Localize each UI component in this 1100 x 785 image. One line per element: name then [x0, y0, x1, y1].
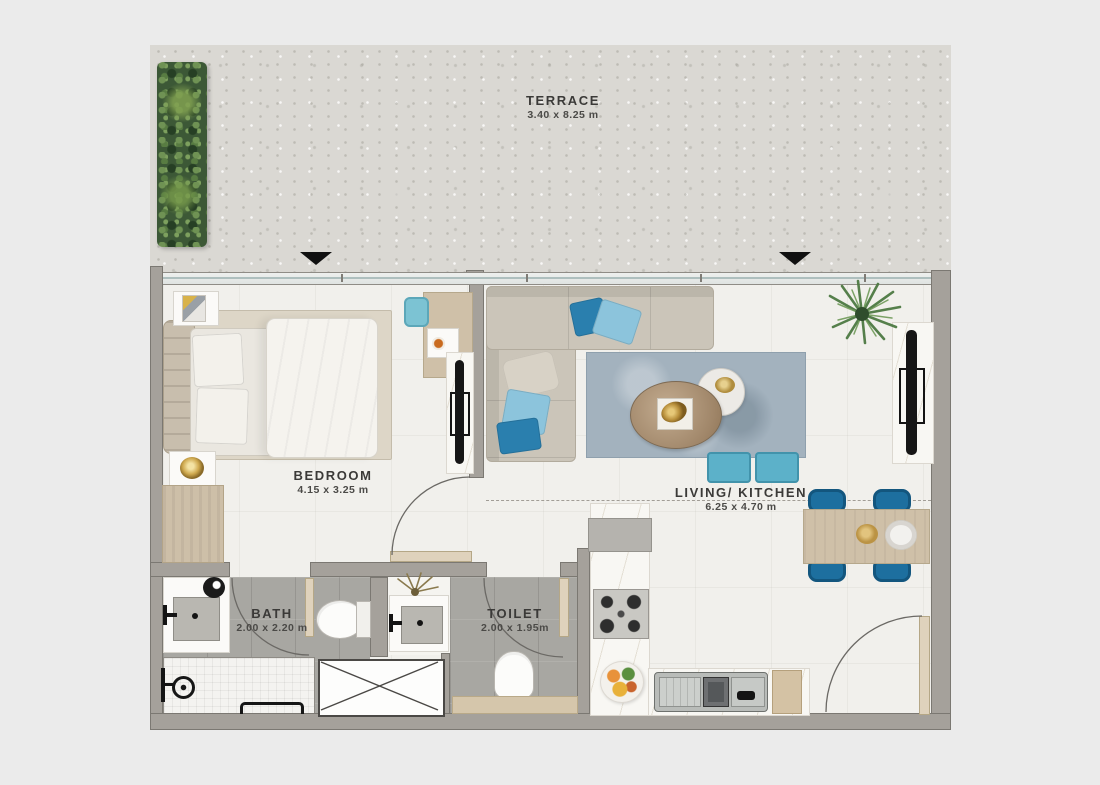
mullion-tick	[526, 274, 528, 282]
terrace-dims: 3.40 x 8.25 m	[526, 109, 600, 121]
terrace-window-wall	[163, 272, 931, 285]
desk-chair	[404, 297, 429, 327]
terrace-name: TERRACE	[526, 93, 600, 108]
toilet-basin-drain	[417, 620, 423, 626]
bed-pillow	[192, 333, 245, 388]
bath-name: BATH	[236, 606, 307, 621]
table-lamp	[180, 457, 204, 479]
toilet-bench	[452, 696, 578, 714]
decor-bowl	[715, 377, 735, 393]
bedroom-tv	[455, 360, 464, 464]
shower-handle-bar	[240, 702, 304, 714]
service-shaft	[318, 659, 445, 717]
living-tv	[906, 330, 917, 455]
bath-toilet-cistern	[356, 601, 371, 638]
sink-drainboard	[659, 677, 701, 707]
bath-dims: 2.00 x 2.20 m	[236, 622, 307, 634]
cutting-board	[772, 670, 802, 714]
sink-faucet	[737, 691, 755, 700]
nightstand-bottom	[169, 451, 216, 486]
kitchen-sink	[654, 672, 768, 712]
fridge	[588, 518, 652, 552]
toilet-vanity	[389, 595, 449, 652]
wall-bath-top-left	[150, 562, 230, 577]
bedroom-dims: 4.15 x 3.25 m	[293, 484, 372, 496]
floor-plan: TERRACE 3.40 x 8.25 m BEDROOM 4.15 x 3.2…	[0, 0, 1100, 785]
toilet-fixture	[494, 651, 534, 700]
glass-line	[163, 277, 931, 279]
wall-kitchen-toilet	[577, 548, 590, 714]
wall-bath-alcove	[370, 577, 388, 657]
toilet-dims: 2.00 x 1.95m	[481, 622, 549, 634]
toilet-name: TOILET	[481, 606, 549, 621]
mullion-tick	[341, 274, 343, 282]
entrance-arrow-icon	[779, 252, 811, 265]
toilet-door-leaf	[559, 578, 569, 637]
vanity-basin	[173, 597, 220, 641]
bath-accessory	[203, 577, 225, 598]
terrace-floor	[150, 45, 951, 272]
mullion-tick	[864, 274, 866, 282]
living-kitchen-label: LIVING/ KITCHEN 6.25 x 4.70 m	[675, 485, 807, 513]
mullion-tick	[700, 274, 702, 282]
shower-head	[172, 676, 195, 699]
coffee-cup	[432, 337, 445, 350]
bedroom-door-leaf	[390, 551, 472, 562]
nightstand-top	[173, 291, 219, 326]
living-kitchen-name: LIVING/ KITCHEN	[675, 485, 807, 500]
toilet-label: TOILET 2.00 x 1.95m	[481, 606, 549, 634]
wall-bath-top-right	[310, 562, 487, 577]
entrance-door-leaf	[919, 616, 930, 715]
entrance-arrow-icon	[300, 252, 332, 265]
coffee-table	[630, 381, 722, 449]
sofa-pillow-blue	[496, 417, 542, 455]
bed-duvet	[266, 318, 378, 458]
bath-label: BATH 2.00 x 2.20 m	[236, 606, 307, 634]
bed-pillow	[195, 387, 249, 445]
ottoman	[755, 452, 799, 483]
toilet-vanity-spout	[389, 621, 402, 625]
vanity-faucet-spout	[163, 613, 177, 617]
gold-plate	[856, 524, 878, 544]
sink-controls	[703, 677, 729, 707]
terrace-label: TERRACE 3.40 x 8.25 m	[526, 93, 600, 121]
wall-right	[931, 270, 951, 714]
bedroom-name: BEDROOM	[293, 468, 372, 483]
wall-bottom	[150, 713, 951, 730]
dinner-plate	[885, 520, 917, 550]
framed-art	[182, 295, 206, 322]
living-kitchen-dims: 6.25 x 4.70 m	[675, 501, 807, 513]
hedge-planter	[157, 62, 207, 247]
dining-table	[803, 509, 930, 564]
wardrobe	[162, 485, 224, 563]
cooktop-hob	[593, 589, 649, 639]
ottoman	[707, 452, 751, 483]
bedroom-label: BEDROOM 4.15 x 3.25 m	[293, 468, 372, 496]
basin-drain	[192, 613, 198, 619]
fruit-bowl	[600, 661, 644, 703]
